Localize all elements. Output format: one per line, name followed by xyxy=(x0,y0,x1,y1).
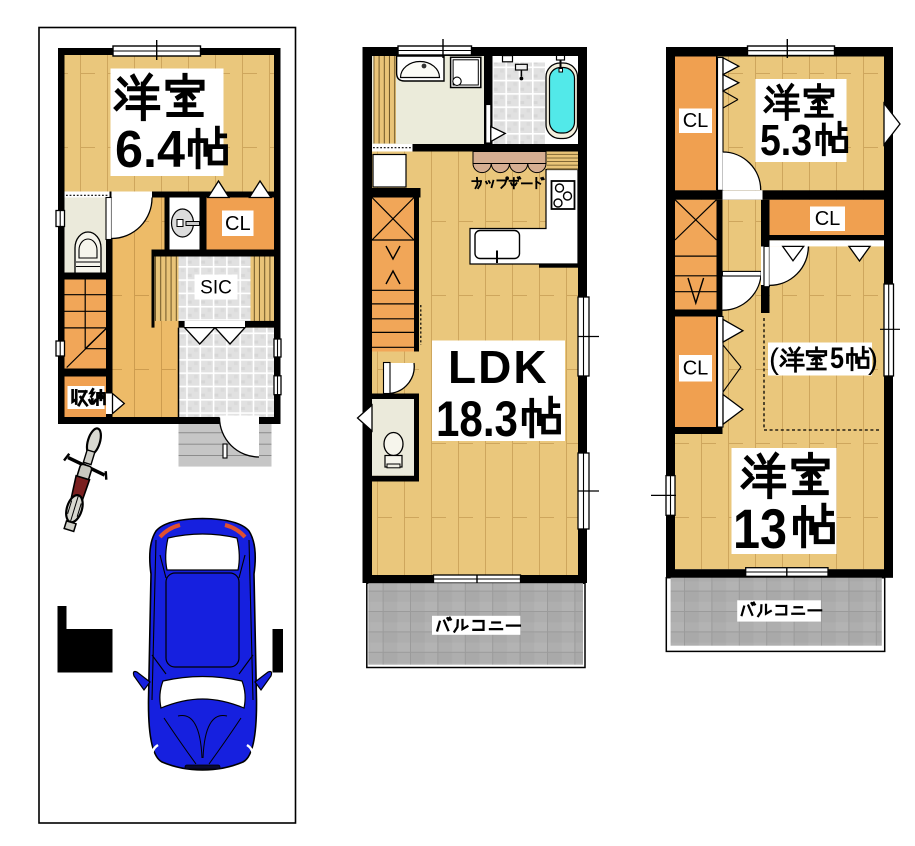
svg-text:CL: CL xyxy=(683,110,709,132)
svg-text:LDK: LDK xyxy=(448,341,549,393)
svg-text:5: 5 xyxy=(830,342,844,375)
svg-text:13: 13 xyxy=(733,497,787,560)
svg-text:5.3: 5.3 xyxy=(760,116,812,165)
svg-text:(: ( xyxy=(769,343,779,376)
svg-text:CL: CL xyxy=(815,208,841,230)
svg-text:18.3: 18.3 xyxy=(436,391,518,447)
svg-text:CL: CL xyxy=(683,358,709,380)
svg-text:CL: CL xyxy=(225,213,251,235)
svg-text:6.4: 6.4 xyxy=(115,121,185,179)
svg-text:SIC: SIC xyxy=(200,278,232,299)
svg-text:): ) xyxy=(868,343,878,376)
